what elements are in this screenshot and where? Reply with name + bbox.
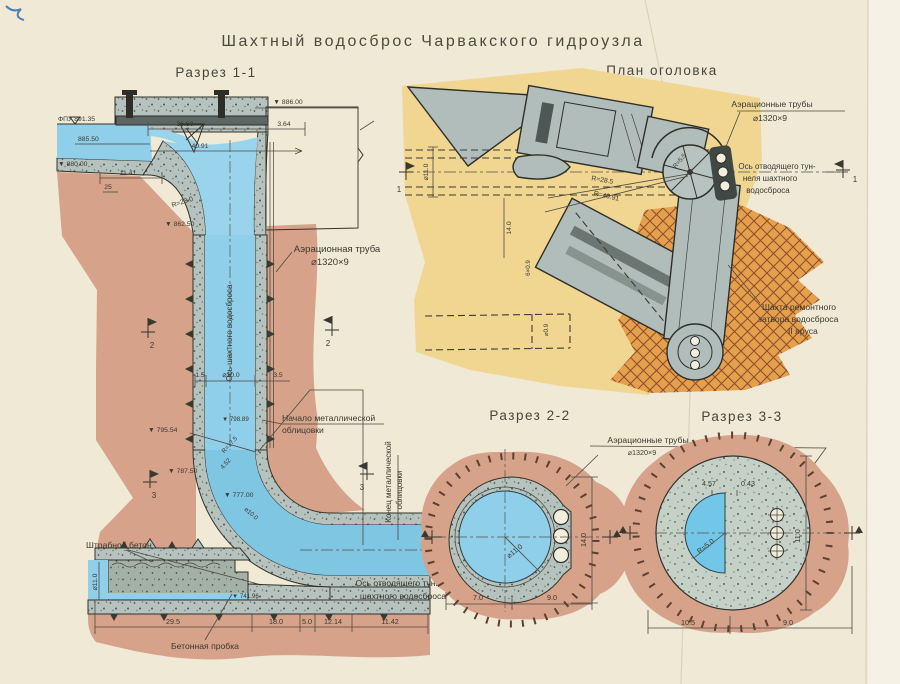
metal-end-label-1: Конец металлической — [384, 441, 393, 522]
dim-9-3-3: 9.0 — [783, 618, 793, 627]
plan-repair-shaft-label-3: II яруса — [788, 326, 818, 336]
dim-3-64: 3.64 — [277, 121, 290, 128]
dim-14-2-2: 14.0 — [579, 533, 588, 547]
section-3-3-title: Разрез 3-3 — [701, 409, 782, 424]
plan-view-drawing: Аэрационные трубы ⌀1320×9 Ось отводящего… — [397, 68, 858, 395]
section-2-2-title: Разрез 2-2 — [489, 408, 570, 423]
rock-mass-bottom — [88, 614, 430, 659]
plan-aeration-label-2: ⌀1320×9 — [753, 113, 787, 123]
dim-18-0: 18.0 — [269, 617, 283, 626]
elevation-795: ▼ 795.54 — [148, 427, 178, 434]
elevation-880: ▼ 880.00 — [58, 161, 88, 168]
dim-40-91: 40.91 — [191, 143, 208, 150]
section-3-3-drawing: 4.57 0.43 R=5.0 11.0 10.5 9.0 — [619, 435, 863, 634]
section-1-1-drawing: ФПУ 891.35 885.50 ▼ 880.00 ▼ 886.00 36.5… — [57, 90, 462, 659]
concrete-plug-label: Бетонная пробка — [171, 641, 239, 651]
blue-corner-mark — [6, 6, 24, 20]
gate-hoist-right-cap — [214, 90, 229, 95]
plan-outlet-label-2: неля шахтного — [743, 174, 798, 183]
aeration-pipe-2-2-a — [554, 510, 569, 525]
plan-dim-14: 14.0 — [506, 221, 513, 234]
plan-aeration-label-1: Аэрационные трубы — [731, 99, 812, 109]
dim-25: 25 — [104, 184, 112, 191]
elevation-885: 885.50 — [78, 136, 99, 143]
aeration-label-2-2-a: Аэрационные трубы — [607, 435, 688, 445]
elevation-886: ▼ 886.00 — [273, 99, 303, 106]
dim-5-0: 5.0 — [302, 617, 312, 626]
dim-11-41: 11.41 — [120, 170, 137, 177]
dim-3-5: 3.5 — [273, 372, 283, 379]
shaft-lining-left — [193, 235, 205, 450]
aeration-pipe-2-2-c — [554, 548, 569, 563]
reservoir-water — [57, 124, 152, 161]
gate-hoist-left — [126, 94, 133, 118]
aeration-pipe-label-1: Аэрационная труба — [294, 244, 381, 255]
shaft-lining-right — [255, 235, 267, 450]
marker-3-right: 3 — [360, 483, 365, 492]
elevation-798: ▼ 798.89 — [222, 416, 249, 423]
plan-outlet-label-3: водосброса — [746, 186, 790, 195]
aeration-pipe-2-2-b — [554, 529, 569, 544]
marker-2-right: 2 — [326, 339, 331, 348]
section-1-1-title: Разрез 1-1 — [175, 65, 256, 80]
aeration-pipe-label-2: ⌀1320×9 — [311, 257, 349, 268]
dim-4-57: 4.57 — [702, 479, 716, 488]
dim-29-5: 29.5 — [166, 617, 180, 626]
plan-outlet-label-1: Ось отводящего тун- — [738, 162, 816, 171]
shaft-axis-label: Ось шахтного водосброса — [225, 284, 234, 381]
shtrab-concrete-label: Штрабной бетон — [86, 540, 152, 550]
dim-36-50: 36.50 — [176, 121, 193, 128]
dim-11-42: 11.42 — [381, 617, 398, 626]
dim-10-5-3-3: 10.5 — [681, 618, 695, 627]
elevation-fpu: ФПУ 891.35 — [58, 116, 95, 123]
outlet-axis-label-2: шахтного водосброса — [360, 591, 446, 601]
elevation-862: ▼ 862.50 — [165, 221, 195, 228]
paper-edge-strip — [868, 0, 900, 684]
elevation-777: ▼ 777.00 — [224, 492, 254, 499]
plan-repair-shaft-label-1: Шахта ремонтного — [762, 302, 836, 312]
aeration-label-2-2-b: ⌀1320×9 — [628, 448, 657, 457]
dim-11-3-3: 11.0 — [793, 529, 802, 542]
plan-dim-d11: ⌀11.0 — [423, 163, 430, 180]
dim-12-14: 12.14 — [324, 617, 342, 626]
dim-1-5: 1.5 — [195, 372, 205, 379]
dim-9-2-2: 9.0 — [547, 593, 557, 602]
metal-start-label-2: облицовки — [282, 425, 324, 435]
plan-repair-shaft-label-2: затвора водосброса — [758, 314, 839, 324]
paper-crease-right — [866, 0, 868, 684]
plan-marker-1-right: 1 — [853, 175, 858, 184]
metal-start-label-1: Начало металлической — [282, 413, 375, 423]
page-title: Шахтный водосброс Чарвакского гидроузла — [221, 33, 644, 50]
tunnel-bottom-lining — [88, 600, 430, 614]
aeration-pipes-3-3 — [768, 506, 786, 560]
dim-d11-tunnel: ⌀11.0 — [92, 573, 99, 590]
technical-drawing-canvas: Шахтный водосброс Чарвакского гидроузла … — [0, 0, 900, 684]
plan-dim-6x09: 6×0.9 — [525, 260, 532, 276]
rock-mass-left — [57, 172, 196, 556]
dim-d10: ⌀10.0 — [222, 372, 240, 379]
dim-7-2-2: 7.0 — [473, 593, 483, 602]
gate-hoist-right — [218, 94, 225, 118]
elevation-741: ▼ 741.96 — [232, 593, 259, 600]
plan-dim-d09: ⌀0.9 — [543, 323, 550, 336]
plan-marker-1-left: 1 — [397, 185, 402, 194]
dim-0-43: 0.43 — [741, 479, 755, 488]
metal-end-label-2: облицовки — [395, 471, 404, 510]
marker-2-left: 2 — [150, 341, 155, 350]
gate-hoist-left-cap — [122, 90, 137, 95]
marker-3-left: 3 — [152, 491, 157, 500]
elevation-787: ▼ 787.50 — [168, 468, 198, 475]
drawing-sheet: Шахтный водосброс Чарвакского гидроузла … — [0, 0, 900, 684]
